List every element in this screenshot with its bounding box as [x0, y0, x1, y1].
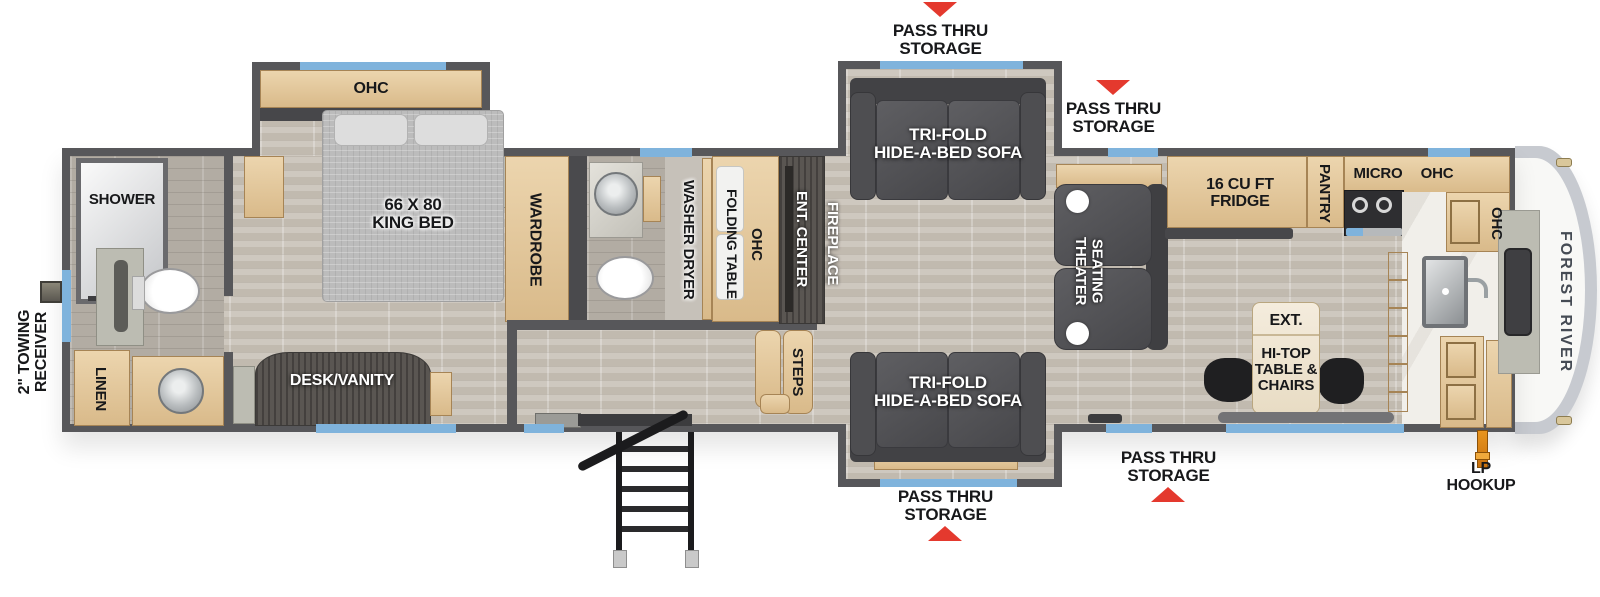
kitchen-ohc-right-label: OHC [1488, 200, 1504, 246]
ent-center-label: ENT. CENTER [793, 172, 809, 306]
hitop-table-seam [1253, 334, 1319, 336]
ent-center-tv [785, 166, 793, 312]
washer-dryer-label: WASHER DRYER [680, 166, 696, 314]
sofa-slide-top-window [880, 61, 1023, 69]
wall [507, 320, 517, 424]
nightstand [244, 156, 284, 218]
ladder-rail [688, 432, 694, 552]
mid-bath-cabinet [643, 176, 661, 222]
ladder-rung [622, 526, 688, 532]
ladder-foot [685, 550, 699, 568]
toilet-rear [140, 268, 200, 314]
burner-icon [1376, 197, 1392, 213]
wardrobe-label: WARDROBE [526, 170, 543, 310]
ladder-rung [622, 486, 688, 492]
theater-seating-label: THEATER SEATING [1072, 226, 1118, 316]
entry-ladder [602, 432, 712, 566]
lp-hookup-label: LP HOOKUP [1438, 460, 1524, 495]
brand-label: FOREST RIVER [1552, 196, 1574, 408]
front-tv [1504, 248, 1532, 336]
pillow [334, 114, 408, 146]
window [62, 270, 71, 342]
laundry-back [702, 158, 712, 320]
pass-thru-label-bottom-center: PASS THRU STORAGE [883, 488, 1008, 525]
stove-front [1346, 228, 1402, 236]
window [524, 424, 564, 433]
hitop-chair [1318, 358, 1364, 404]
desk-bench [430, 372, 452, 416]
arrow-icon [1096, 80, 1130, 95]
hitop-label: HI-TOP TABLE & CHAIRS [1248, 346, 1324, 395]
sofa-slide-bottom-window [880, 479, 1017, 487]
pillow [414, 114, 488, 146]
kitchen-drawers [1388, 252, 1408, 412]
cupholder-icon [1066, 322, 1089, 345]
ladder-rung [622, 466, 688, 472]
pantry-label: PANTRY [1316, 164, 1332, 222]
window [1226, 424, 1404, 433]
wall [569, 156, 587, 322]
bedroom-ohc-label: OHC [260, 80, 482, 97]
toilet-rear-tank [132, 276, 145, 310]
pass-thru-label-top-right: PASS THRU STORAGE [1051, 100, 1176, 137]
sofa-top-label: TRI-FOLD HIDE-A-BED SOFA [856, 126, 1040, 163]
cabinet-door [1446, 384, 1476, 420]
window [1106, 424, 1152, 433]
cabinet-door [1446, 342, 1476, 378]
island-sink-drain [1442, 288, 1449, 295]
mid-bath-sink [594, 172, 638, 216]
wall [224, 156, 233, 296]
window [1428, 148, 1470, 157]
window [1108, 148, 1158, 157]
fridge-label: 16 CU FT FRIDGE [1180, 176, 1300, 211]
arrow-icon [1151, 487, 1185, 502]
window [316, 424, 456, 433]
ladder-foot [613, 550, 627, 568]
lp-pipe-joint [1475, 452, 1490, 460]
arrow-icon [923, 2, 957, 17]
king-bed-label: 66 X 80 KING BED [330, 196, 496, 233]
steps-label: STEPS [789, 336, 805, 408]
cabinet-door [1450, 200, 1480, 244]
rv-floorplan: FOREST RIVER SHOWER LINEN OHC 66 X 80 KI… [0, 0, 1600, 597]
bedroom-slide-window [300, 62, 446, 70]
bench-bar [1088, 414, 1122, 423]
sofa-bottom-label: TRI-FOLD HIDE-A-BED SOFA [856, 374, 1040, 411]
shower-label: SHOWER [78, 192, 166, 208]
window [640, 148, 692, 157]
ladder-rung [622, 446, 688, 452]
rear-bath-sink [158, 368, 204, 414]
folding-table-label: FOLDING TABLE [724, 176, 739, 312]
bench-bar [1218, 412, 1394, 423]
fridge-pantry-divider [1306, 157, 1308, 227]
arrow-icon [928, 526, 962, 541]
desk-side-panel [233, 366, 255, 424]
micro-label: MICRO [1348, 166, 1408, 182]
desk-vanity-label: DESK/VANITY [262, 372, 422, 389]
pass-thru-label-bottom-right: PASS THRU STORAGE [1106, 449, 1231, 486]
ladder-rung [622, 506, 688, 512]
burner-icon [1352, 197, 1368, 213]
towing-receiver-label: 2" TOWING RECEIVER [16, 282, 60, 422]
cap-latch-icon [1556, 416, 1572, 425]
pass-thru-label-top-left: PASS THRU STORAGE [878, 22, 1003, 59]
kitchen-counter [1165, 228, 1293, 239]
bath-partition-door [114, 260, 128, 332]
linen-label: LINEN [92, 356, 108, 422]
fireplace-label: FIREPLACE [824, 192, 840, 296]
cap-latch-icon [1556, 158, 1572, 167]
ext-label: EXT. [1252, 312, 1320, 329]
wall [224, 352, 233, 424]
toilet-mid [596, 256, 654, 300]
hall-ohc-label: OHC [748, 222, 764, 266]
steps-base [760, 394, 790, 414]
kitchen-ohc-top-label: OHC [1414, 166, 1460, 182]
cupholder-icon [1066, 190, 1089, 213]
